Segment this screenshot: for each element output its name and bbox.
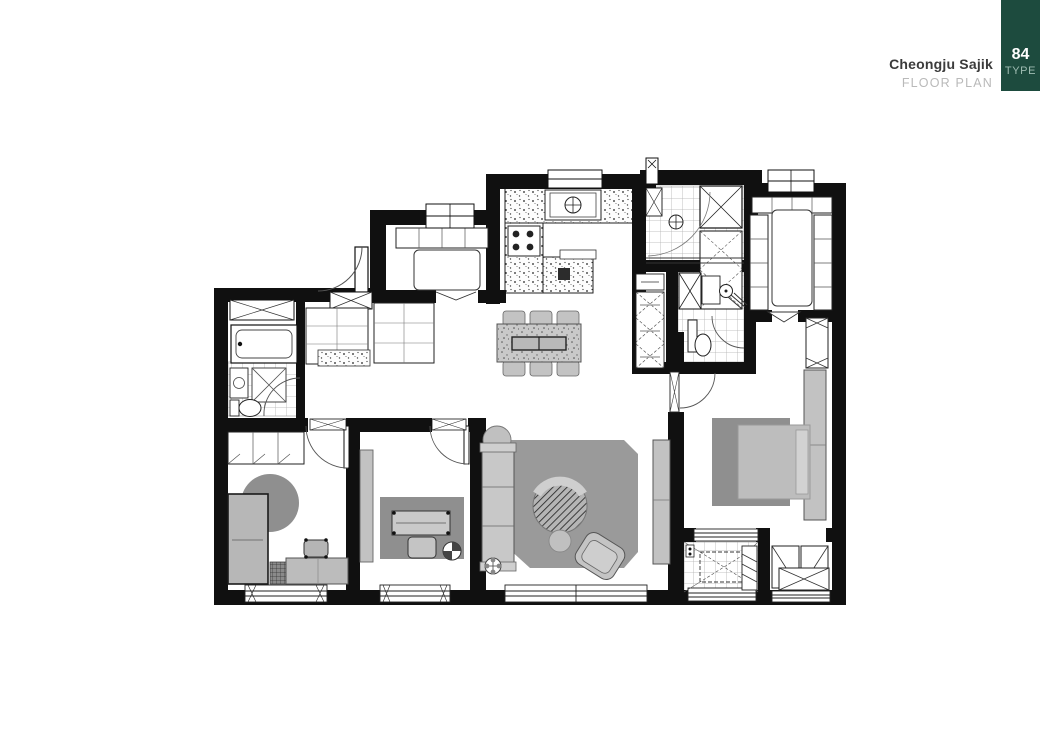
louver-door [742, 546, 757, 590]
bathtub [231, 325, 297, 363]
window-utility [772, 591, 830, 602]
tv-cabinet [653, 440, 670, 564]
entry-mat [318, 350, 370, 366]
floor-plan [0, 0, 1061, 748]
target-symbol [443, 542, 461, 560]
master-door [670, 372, 715, 412]
window-bedroom3 [380, 585, 450, 602]
entry-sill-cabinet [330, 292, 372, 309]
hall-cabinets [306, 303, 434, 366]
bathroom1-closet [230, 300, 294, 320]
transom-bedroom2 [310, 419, 346, 430]
bedroom2-door [306, 426, 349, 468]
shower1 [252, 368, 286, 402]
kitchen-shelf [560, 250, 596, 259]
bed-pillows [796, 430, 808, 494]
bedroom3-chair [408, 537, 436, 558]
ceiling-symbol-living [485, 558, 502, 575]
bedroom3-desk [392, 511, 450, 535]
sofa [480, 443, 516, 571]
coffee-table [533, 479, 587, 533]
living-room [480, 426, 670, 583]
toilet1 [230, 400, 261, 417]
ac-unit-left [426, 204, 474, 228]
pouf [549, 530, 571, 552]
cooktop [508, 226, 540, 256]
kitchen [505, 187, 640, 293]
bedroom2-desk [286, 558, 348, 584]
dressing-entry-symbol [768, 312, 800, 322]
bedroom2 [228, 419, 349, 584]
bed-small [414, 250, 480, 290]
transom-bedroom3 [432, 419, 466, 430]
utility-cabinet [779, 568, 829, 590]
ac-unit-kitchen [548, 170, 602, 188]
shoe-closet [700, 186, 742, 228]
shower-partition [679, 273, 701, 309]
page: Cheongju Sajik FLOOR PLAN 84 TYPE [0, 0, 1061, 748]
window-living [505, 585, 647, 602]
master-closet [806, 318, 828, 368]
bedroom2-wardrobe-top [228, 432, 304, 464]
bedroom3 [360, 419, 469, 562]
utility-room [742, 546, 829, 590]
bedroom3-door [430, 426, 469, 464]
curtain-symbol [436, 292, 476, 300]
kitchen-sink [545, 190, 601, 220]
bedroom2-chair [304, 538, 328, 559]
window-bedroom2 [245, 585, 327, 602]
kitchen-hood-control [558, 268, 570, 280]
balcony-faucet [686, 545, 694, 557]
pantry-cabinets [636, 274, 664, 368]
bathroom2-sink [702, 276, 720, 304]
dressing-island [772, 210, 812, 306]
bathroom1-sink [230, 368, 248, 398]
bedroom2-bed-unit [228, 494, 268, 584]
bedroom2-grid-unit [270, 562, 286, 584]
ac-unit-right [768, 170, 814, 192]
dining-set [497, 311, 581, 376]
window-master-balcony [694, 529, 758, 541]
bedroom3-wardrobe [360, 450, 373, 562]
